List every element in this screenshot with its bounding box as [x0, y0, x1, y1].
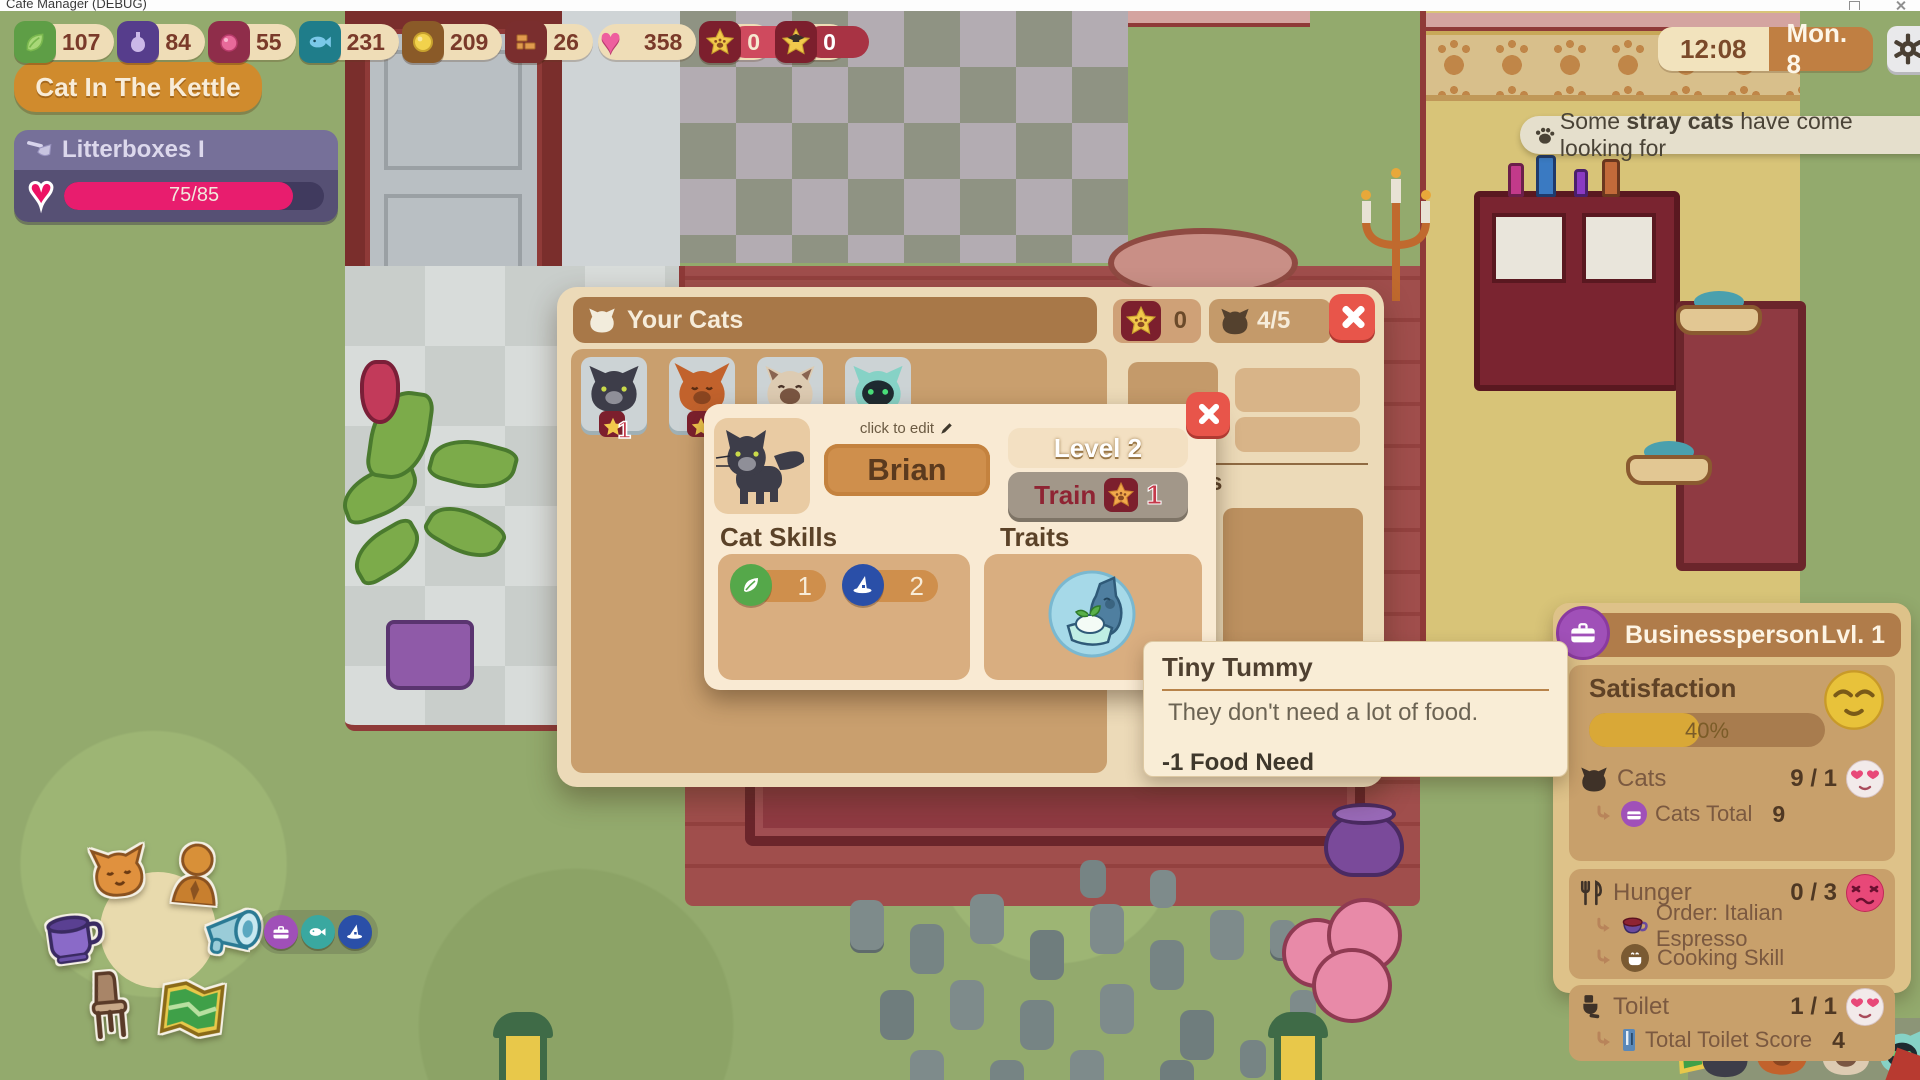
bricks-icon: [505, 21, 547, 63]
window-title: Cafe Manager (DEBUG): [6, 0, 147, 11]
close-dialog-button[interactable]: [1329, 294, 1375, 340]
your-cats-header: Your Cats: [573, 297, 1097, 343]
sub-arrow-icon: [1595, 805, 1613, 823]
paw-icon: [1534, 124, 1556, 146]
star-paw-icon: [1121, 301, 1161, 341]
resource-greens: 107: [16, 24, 114, 60]
stone-path: [850, 900, 860, 910]
side-button[interactable]: [1235, 417, 1360, 452]
train-button[interactable]: Train 1: [1008, 472, 1188, 518]
maximize-icon[interactable]: [1849, 1, 1860, 10]
radial-menu: [40, 840, 380, 1070]
heart-icon: ♥: [600, 20, 621, 62]
tooltip-description: They don't need a lot of food.: [1162, 699, 1549, 727]
resource-fish: 231: [301, 24, 399, 60]
resource-star-graduate: 0: [777, 24, 848, 60]
relieved-face-icon: [1823, 669, 1885, 736]
cutlery-icon: [1579, 880, 1605, 906]
cat-avatar: [714, 418, 810, 514]
star-paw-badge: 1: [599, 411, 625, 437]
yellow-room: [1420, 11, 1800, 651]
cat-skills-panel: 1 2: [718, 554, 970, 680]
resource-bar: 107 84 55 231 209 26 ♥: [16, 24, 848, 60]
cooking-skill-subrow: Cooking Skill: [1595, 943, 1875, 973]
star-graduate-icon: [775, 21, 817, 63]
tooltip-effect: -1 Food Need: [1162, 749, 1549, 777]
cat-bowl: [1676, 291, 1762, 335]
leaf-skill-icon: [730, 564, 772, 606]
potted-plant: [340, 380, 520, 720]
trait-tooltip: Tiny Tummy They don't need a lot of food…: [1143, 641, 1568, 777]
cats-total-subrow: Cats Total 9: [1595, 799, 1875, 829]
customer-header: Businessperson Lvl. 1: [1585, 613, 1901, 657]
broom-icon: [26, 138, 54, 162]
fish-icon[interactable]: [301, 915, 335, 949]
resource-potion: 84: [119, 24, 205, 60]
stray-cats-notification[interactable]: Some stray cats have come looking for: [1520, 116, 1920, 154]
game-window: Cafe Manager (DEBUG): [0, 0, 1920, 1080]
customer-panel: Businessperson Lvl. 1 Satisfaction 40% C…: [1553, 603, 1911, 993]
cooking-pot-icon: [1621, 944, 1649, 972]
purple-pot: [1320, 795, 1408, 883]
sub-arrow-icon: [1595, 949, 1613, 967]
resource-star-paw: 0: [701, 24, 772, 60]
cat-name-field[interactable]: Brian: [824, 444, 990, 496]
cat-skills-heading: Cat Skills: [720, 522, 837, 553]
heart-icon: ♥: [28, 173, 54, 213]
edit-name-hint: click to edit: [824, 420, 990, 437]
close-window-icon[interactable]: [1895, 1, 1906, 10]
litterboxes-goal-panel: Litterboxes I ♥ 75/85: [14, 130, 338, 222]
flower-bush: [1272, 888, 1412, 1028]
witch-hat-skill-icon: [842, 564, 884, 606]
chair-icon[interactable]: [81, 968, 141, 1047]
clock-cluster: 12:08 Mon. 8: [1658, 26, 1920, 72]
pencil-icon: [939, 421, 954, 436]
toilet-score-icon: [1621, 1028, 1637, 1052]
heart-eyes-face-icon: [1845, 987, 1885, 1027]
order-subrow: Order: Italian Espresso: [1595, 911, 1875, 941]
toilet-score-subrow: Total Toilet Score 4: [1595, 1025, 1875, 1055]
resource-coin: 209: [404, 24, 502, 60]
toilet-icon: [1579, 994, 1605, 1020]
resource-bricks: 26: [507, 24, 593, 60]
lantern: [487, 1012, 559, 1080]
traits-heading: Traits: [1000, 522, 1069, 553]
star-paw-icon: [1104, 478, 1138, 512]
date-display: Mon. 8: [1769, 27, 1874, 71]
tooltip-title: Tiny Tummy: [1162, 652, 1549, 691]
sub-arrow-icon: [1595, 917, 1613, 935]
star-paw-icon: [699, 21, 741, 63]
goal-title: Litterboxes I: [62, 136, 205, 164]
briefcase-icon[interactable]: [264, 915, 298, 949]
cats-row: Cats 9 / 1: [1579, 761, 1885, 797]
cat-icon: [1219, 307, 1251, 336]
star-points-counter: 0: [1113, 299, 1201, 343]
cat-detail-popup: click to edit Brian Level 2 Train 1 Cat …: [704, 404, 1216, 690]
toilet-panel: Toilet 1 / 1 Total Toilet Score 4: [1569, 985, 1895, 1061]
greens-icon: [14, 21, 56, 63]
briefcase-icon: [1621, 801, 1647, 827]
cat-face-icon[interactable]: [87, 843, 151, 906]
cat-slots-counter: 4/5: [1209, 299, 1331, 343]
witch-hat-icon[interactable]: [338, 915, 372, 949]
espresso-cup-icon: [1621, 915, 1648, 937]
gear-icon: [1892, 33, 1920, 65]
small-rug: [1676, 301, 1806, 571]
close-popup-button[interactable]: [1186, 392, 1230, 436]
cat-thumbnail-black[interactable]: 1: [581, 357, 647, 431]
resource-hearts: ♥ 358: [598, 24, 696, 60]
cat-in-the-kettle-button[interactable]: Cat In The Kettle: [14, 62, 262, 112]
settings-button[interactable]: [1887, 26, 1920, 72]
cat-icon: [1579, 766, 1609, 793]
sub-arrow-icon: [1595, 1031, 1613, 1049]
cat-bowl: [1626, 441, 1712, 485]
dialog-title: Your Cats: [627, 306, 743, 335]
quick-menu: [258, 910, 378, 954]
map-icon[interactable]: [155, 975, 230, 1049]
coin-icon: [402, 21, 444, 63]
cat-icon: [587, 307, 617, 334]
satisfaction-bar: 40%: [1589, 713, 1825, 747]
tiny-tummy-trait-icon[interactable]: [1048, 570, 1136, 658]
cat-level-label: Level 2: [1008, 428, 1188, 468]
fish-icon: [299, 21, 341, 63]
side-button[interactable]: [1235, 368, 1360, 412]
potion-bottle-icon: [117, 21, 159, 63]
toilet-row: Toilet 1 / 1: [1579, 989, 1885, 1025]
resource-berry: 55: [210, 24, 296, 60]
potion-cabinet: [1474, 191, 1680, 391]
berry-icon: [208, 21, 250, 63]
hunger-panel: Hunger 0 / 3 Order: Italian Espresso Coo…: [1569, 869, 1895, 979]
os-titlebar: Cafe Manager (DEBUG): [0, 0, 1920, 11]
goal-progress-bar: 75/85: [64, 182, 324, 210]
time-display: 12:08: [1658, 27, 1769, 71]
heart-eyes-face-icon: [1845, 759, 1885, 799]
satisfaction-panel: Satisfaction 40% Cats 9 / 1: [1569, 665, 1895, 861]
coffee-cup-icon[interactable]: [38, 904, 114, 976]
